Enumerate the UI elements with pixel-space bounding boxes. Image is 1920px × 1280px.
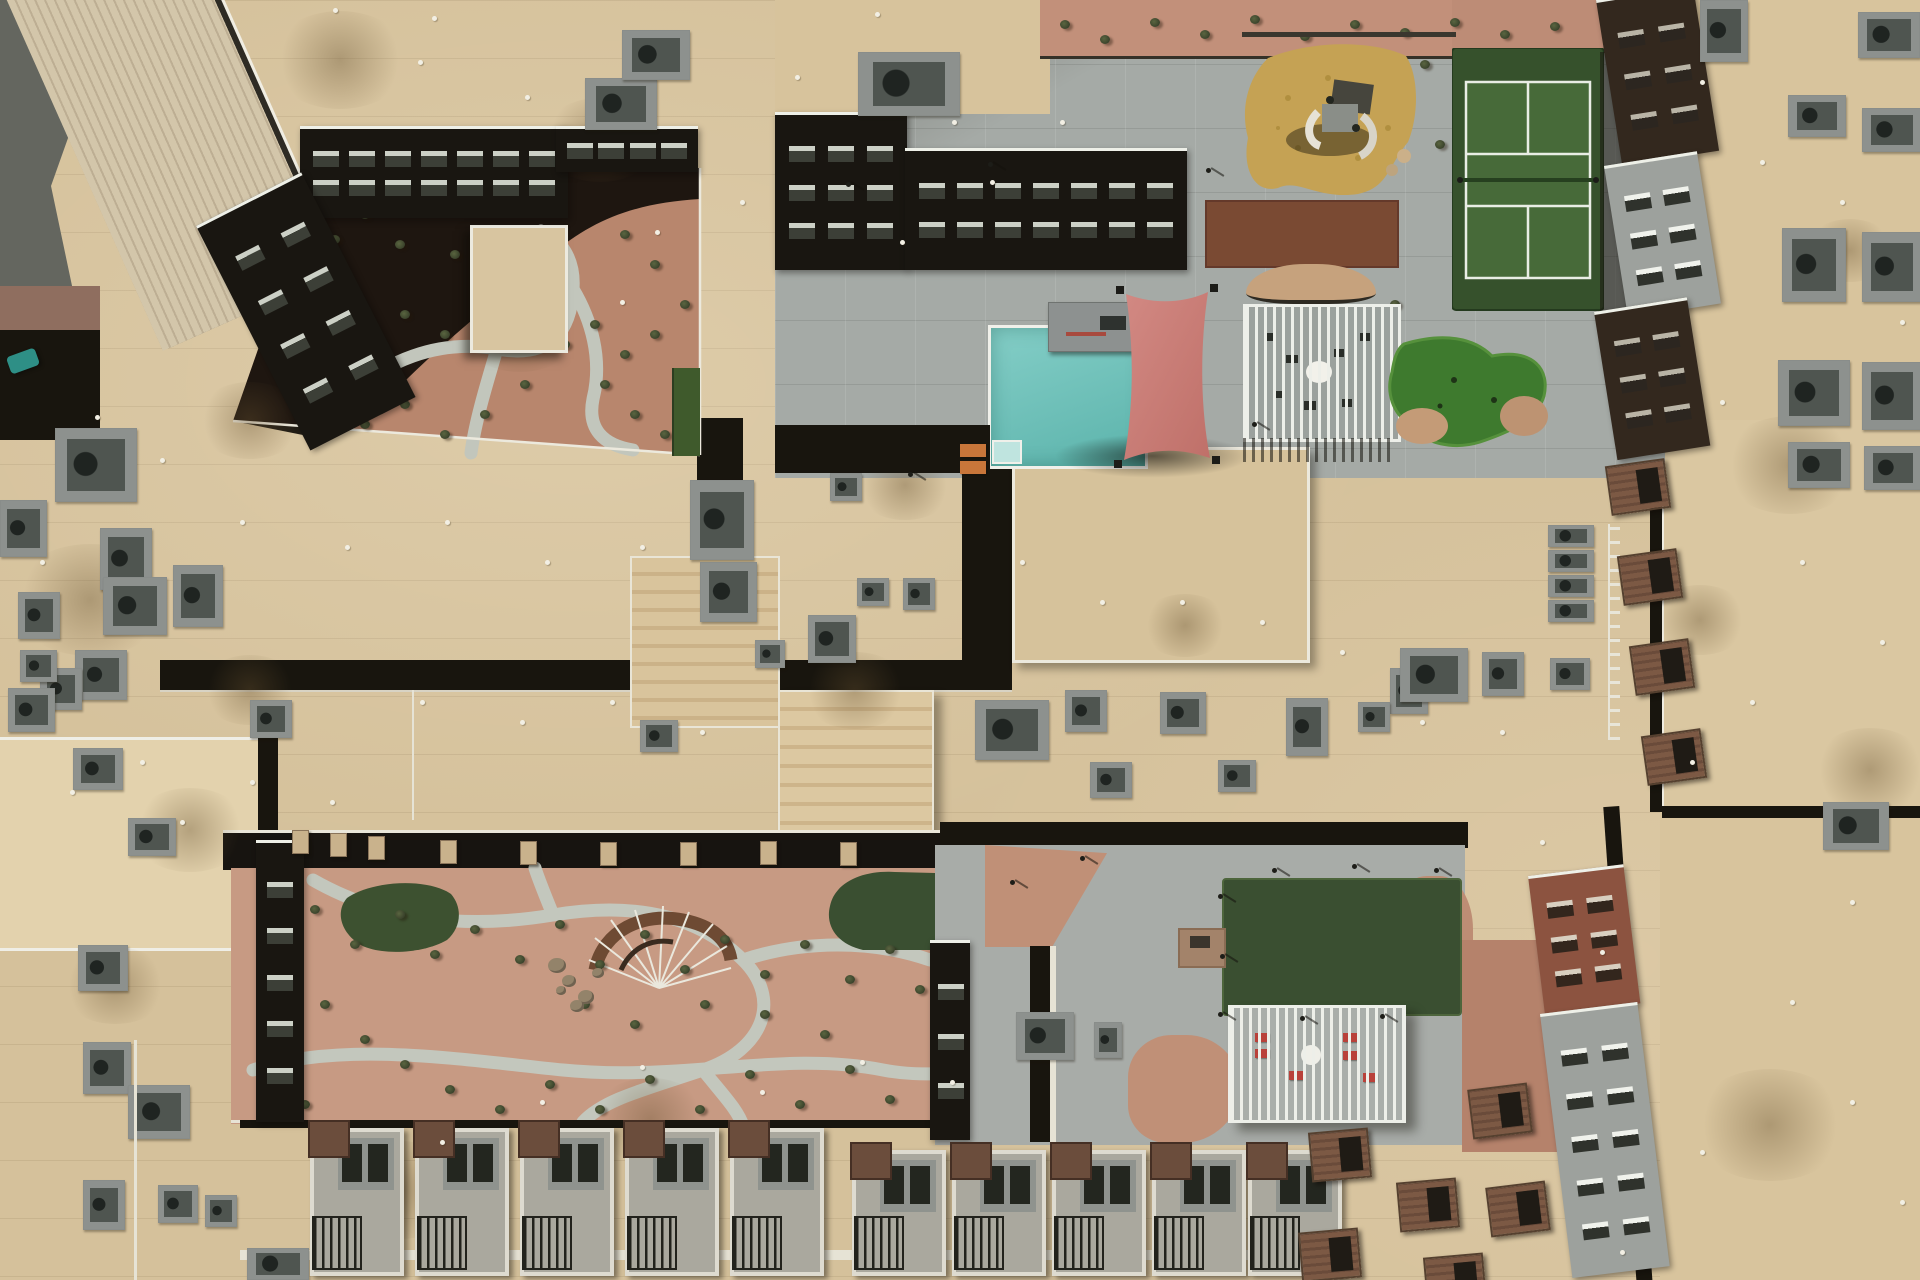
hvac-condenser [1789, 370, 1839, 416]
balcony-pergola [1396, 1177, 1460, 1232]
hvac-unit [1778, 360, 1850, 426]
hvac-unit [158, 1185, 198, 1223]
skylight [368, 1144, 388, 1182]
building-facade [1594, 297, 1710, 460]
hvac-unit [1788, 95, 1846, 137]
hvac-condenser [760, 645, 780, 664]
roof-vent-dot [1720, 400, 1725, 405]
hvac-condenser [1410, 656, 1458, 693]
window [257, 289, 287, 315]
hvac-condenser [257, 706, 286, 732]
stair-tower [308, 1120, 350, 1158]
window [1581, 1221, 1609, 1240]
hvac-condenser [700, 492, 745, 548]
skylight [910, 1166, 930, 1204]
skylight [788, 1144, 808, 1182]
hvac-condenser [1556, 663, 1583, 685]
window [598, 143, 624, 159]
hvac-unit [1862, 108, 1920, 152]
hvac-condenser [1871, 243, 1913, 292]
roof-vent-dot [1760, 160, 1765, 165]
window [1629, 229, 1657, 249]
roof-vent-dot [1700, 1150, 1705, 1155]
hvac-unit [640, 720, 678, 752]
hvac-condenser [596, 86, 646, 122]
window [938, 1083, 964, 1099]
hvac-unit [858, 52, 960, 116]
hvac-condenser [137, 1093, 180, 1130]
roof-vent-dot [1100, 600, 1105, 605]
path-light [1218, 1012, 1223, 1017]
roof-vent-dot [432, 16, 437, 21]
roof-vent-dot [70, 790, 75, 795]
window [1606, 1086, 1634, 1105]
stair-tower [850, 1142, 892, 1180]
roof-vent-dot [330, 800, 335, 805]
window [789, 185, 815, 201]
hvac-condenser [113, 586, 158, 626]
light-shadow [1305, 1015, 1319, 1025]
window [1555, 968, 1583, 987]
skylight [578, 1144, 598, 1182]
hvac-condenser [908, 583, 930, 605]
balcony-opening [1672, 737, 1699, 774]
window [1586, 895, 1614, 914]
pool-lounger [960, 444, 986, 457]
window [957, 222, 983, 238]
window [1611, 1129, 1639, 1148]
window [313, 180, 339, 196]
hvac-unit [1858, 12, 1920, 58]
roof-vent-dot [95, 415, 100, 420]
hvac-condenser [1867, 19, 1910, 51]
hvac-condenser [1833, 809, 1879, 842]
hvac-unit [1862, 362, 1920, 430]
window [421, 151, 447, 167]
path-light [1252, 422, 1257, 427]
stair-tower [1050, 1142, 1092, 1180]
rooftop-unit [415, 1128, 509, 1276]
window [1663, 404, 1691, 424]
window [1617, 29, 1645, 49]
stair-tower [413, 1120, 455, 1158]
path-light [1010, 880, 1015, 885]
hvac-condenser [86, 952, 121, 984]
stair-tower [728, 1120, 770, 1158]
path-light [988, 162, 993, 167]
roof-vent-dot [1840, 200, 1845, 205]
hvac-condenser [986, 709, 1038, 751]
roof-vent-dot [1850, 1100, 1855, 1105]
light-shadow [1225, 953, 1239, 963]
hvac-unit [75, 650, 127, 700]
balcony-railing [417, 1216, 467, 1270]
roof-vent-dot [1260, 620, 1265, 625]
roof-vent-dot [1900, 320, 1905, 325]
window [303, 266, 333, 292]
window [1560, 1047, 1588, 1066]
path-light [846, 182, 851, 187]
window [1071, 183, 1097, 199]
skylight [1110, 1166, 1130, 1204]
path-light [1352, 864, 1357, 869]
window [1662, 186, 1690, 206]
stair-tower [950, 1142, 992, 1180]
hvac-unit [18, 592, 60, 639]
hvac-unit [128, 1085, 190, 1139]
balcony-railing [1250, 1216, 1300, 1270]
hvac-condenser [26, 655, 51, 677]
hvac-unit [903, 578, 935, 610]
roof-vent-dot [640, 1065, 645, 1070]
walkway-pillar [840, 842, 857, 866]
roof-vent-dot [620, 300, 625, 305]
balcony-railing [312, 1216, 362, 1270]
stair-tower [1150, 1142, 1192, 1180]
hvac-condenser [873, 62, 945, 107]
window [1551, 934, 1579, 953]
window [1109, 222, 1135, 238]
window [1590, 929, 1618, 948]
window [938, 984, 964, 1000]
window [385, 151, 411, 167]
walkway-pillar [760, 841, 777, 865]
hvac-unit [690, 480, 754, 560]
roof-vent-dot [1750, 700, 1755, 705]
window [630, 143, 656, 159]
window [348, 355, 378, 381]
balcony-opening [1516, 1189, 1542, 1225]
walkway-pillar [680, 842, 697, 866]
window [957, 183, 983, 199]
path-light [1080, 856, 1085, 861]
hvac-condenser [815, 622, 848, 655]
hvac-condenser [1293, 707, 1322, 747]
hvac-unit [755, 640, 785, 668]
window [867, 146, 893, 162]
roof-vent-dot [1850, 900, 1855, 905]
path-light [1434, 868, 1439, 873]
window [385, 180, 411, 196]
hvac-unit [808, 615, 856, 663]
hvac-condenser [1167, 699, 1199, 728]
light-shadow [913, 471, 927, 481]
hvac-unit [78, 945, 128, 991]
hvac-condenser [90, 1050, 123, 1086]
roof-vent-dot [700, 730, 705, 735]
roof-conduit [134, 1040, 137, 1280]
roof-vent-dot [1020, 560, 1025, 565]
walkway-pillar [440, 840, 457, 864]
hvac-condenser [83, 658, 119, 693]
window [1622, 1216, 1650, 1235]
roof-conduit [412, 690, 414, 820]
hvac-condenser [90, 1188, 119, 1223]
hvac-condenser [256, 1253, 299, 1275]
rooftop-unit [730, 1128, 824, 1276]
balcony-opening [1648, 557, 1675, 594]
hvac-unit [830, 473, 862, 501]
hvac-unit [55, 428, 137, 502]
window [1652, 331, 1680, 351]
window [919, 222, 945, 238]
hvac-condenser [862, 583, 884, 602]
window [1033, 183, 1059, 199]
rooftop-unit [520, 1128, 614, 1276]
roof-vent-dot [795, 75, 800, 80]
window [1670, 104, 1698, 124]
roof-vent-dot [740, 200, 745, 205]
roof-vent-dot [445, 520, 450, 525]
light-shadow [1223, 893, 1237, 903]
window [867, 223, 893, 239]
hvac-condenser [1025, 1019, 1065, 1052]
hvac-unit [1864, 446, 1920, 490]
balcony-pergola [1298, 1227, 1362, 1280]
hvac-condenser [1072, 697, 1101, 726]
balcony-pergola [1467, 1083, 1533, 1140]
roof-vent-dot [952, 120, 957, 125]
walkway-pillar [292, 830, 309, 854]
building-facade [556, 126, 698, 172]
path-light [1380, 1014, 1385, 1019]
window [267, 928, 293, 944]
hvac-condenser [7, 509, 39, 549]
balcony-railing [954, 1216, 1004, 1270]
stair-tower [623, 1120, 665, 1158]
balcony-opening [1329, 1236, 1354, 1272]
path-light [1206, 168, 1211, 173]
roof-vent-dot [540, 1100, 545, 1105]
window [1674, 260, 1702, 280]
window [1595, 963, 1623, 982]
roof-vent-dot [440, 1140, 445, 1145]
window [267, 882, 293, 898]
hvac-unit [1862, 232, 1920, 302]
light-shadow [1223, 1011, 1237, 1021]
building-facade [775, 112, 907, 270]
hvac-unit [173, 565, 223, 627]
window [1071, 222, 1097, 238]
rooftop-unit [625, 1128, 719, 1276]
window [1623, 70, 1651, 90]
balcony-opening [1427, 1186, 1452, 1222]
rooftop-unit [852, 1150, 946, 1276]
hvac-condenser [81, 755, 116, 784]
window [267, 1068, 293, 1084]
hvac-unit [1094, 1022, 1122, 1058]
hvac-condenser [1555, 529, 1587, 543]
hvac-condenser [1224, 765, 1250, 787]
balcony-pergola [1423, 1252, 1487, 1280]
hvac-condenser [164, 1191, 191, 1217]
hvac-unit [83, 1180, 125, 1230]
roof-vent-dot [1800, 560, 1805, 565]
roof-vent-dot [418, 60, 423, 65]
hvac-unit [1700, 0, 1748, 62]
window [1658, 367, 1686, 387]
hvac-unit [1482, 652, 1524, 696]
window [1635, 267, 1663, 287]
balcony-pergola [1485, 1181, 1551, 1238]
roof-vent-dot [250, 780, 255, 785]
roof-vent-dot [520, 720, 525, 725]
roof-vent-dot [1690, 760, 1695, 765]
balcony-opening [1339, 1136, 1364, 1172]
roof-vent-dot [345, 545, 350, 550]
roof-vent-dot [640, 545, 645, 550]
window [421, 180, 447, 196]
building-facade [1604, 151, 1721, 318]
roof-vent-dot [1180, 600, 1185, 605]
window [828, 146, 854, 162]
roof-vent-dot [1500, 730, 1505, 735]
hvac-unit [0, 500, 47, 557]
window [661, 143, 687, 159]
hvac-unit [585, 78, 657, 130]
balcony-pergola [1629, 638, 1695, 696]
balcony-opening [1498, 1091, 1524, 1127]
path-light [1272, 868, 1277, 873]
roof-vent-dot [1340, 650, 1345, 655]
window [995, 222, 1021, 238]
roof-vent-dot [1700, 80, 1705, 85]
window [828, 185, 854, 201]
hvac-unit [1548, 600, 1594, 622]
hvac-unit [205, 1195, 237, 1227]
building-facade [1528, 864, 1640, 1015]
light-shadow [1385, 1013, 1399, 1023]
roof-vent-dot [1420, 720, 1425, 725]
hvac-unit [250, 700, 292, 738]
window [567, 143, 593, 159]
hvac-unit [1548, 525, 1594, 547]
hvac-unit [1016, 1012, 1074, 1060]
roof-vent-dot [1900, 1200, 1905, 1205]
roof-vent-dot [860, 1060, 865, 1065]
hvac-unit [1160, 692, 1206, 734]
hvac-condenser [25, 599, 54, 631]
roof-vent-dot [140, 760, 145, 765]
roof-vent-dot [525, 95, 530, 100]
hvac-unit [1823, 802, 1889, 850]
hvac-unit [700, 562, 757, 622]
roof-vent-dot [655, 230, 660, 235]
window [325, 310, 355, 336]
balcony-opening [1454, 1261, 1479, 1280]
roof-vent-dot [240, 520, 245, 525]
window [529, 180, 555, 196]
hvac-unit [128, 818, 176, 856]
window [267, 1021, 293, 1037]
roof-vent-dot [180, 820, 185, 825]
window [1657, 23, 1685, 43]
hvac-unit [20, 650, 57, 682]
roof-vent-dot [1620, 1250, 1625, 1255]
window [1147, 183, 1173, 199]
window [457, 151, 483, 167]
rooftop-unit [952, 1150, 1046, 1276]
stair-tower [1246, 1142, 1288, 1180]
hvac-unit [1218, 760, 1256, 792]
hvac-unit [857, 578, 889, 606]
hvac-condenser [1797, 449, 1840, 481]
hvac-unit [1065, 690, 1107, 732]
roof-vent-dot [333, 8, 338, 13]
hvac-unit [1550, 658, 1590, 690]
balcony-railing [1054, 1216, 1104, 1270]
window [1617, 1173, 1645, 1192]
hvac-condenser [1792, 239, 1837, 291]
building-facade [256, 840, 304, 1122]
window [1147, 222, 1173, 238]
hvac-unit [1400, 648, 1468, 702]
window [457, 180, 483, 196]
walkway-pillar [600, 842, 617, 866]
light-shadow [1277, 867, 1291, 877]
hvac-condenser [181, 574, 216, 617]
path-light [1300, 1016, 1305, 1021]
hvac-condenser [1871, 372, 1913, 420]
hvac-condenser [135, 824, 168, 850]
light-shadow [1439, 867, 1453, 877]
roof-vent-dot [760, 1090, 765, 1095]
window [1630, 111, 1658, 131]
window [1033, 222, 1059, 238]
hvac-unit [1782, 228, 1846, 302]
building-facade [930, 940, 970, 1140]
window [919, 183, 945, 199]
aerial-photo [0, 0, 1920, 1280]
roof-vent-dot [610, 700, 615, 705]
building-facade [905, 148, 1187, 270]
window [235, 245, 265, 271]
hvac-condenser [709, 571, 749, 613]
pool-lounger [960, 461, 986, 474]
hvac-condenser [646, 725, 672, 747]
walkway-pillar [520, 841, 537, 865]
hvac-condenser [1555, 554, 1587, 568]
balcony-railing [522, 1216, 572, 1270]
window [828, 223, 854, 239]
window [349, 151, 375, 167]
balcony-railing [854, 1216, 904, 1270]
window [1576, 1178, 1604, 1197]
light-shadow [1257, 421, 1271, 431]
hvac-condenser [1873, 453, 1913, 483]
light-shadow [1357, 863, 1371, 873]
light-shadow [1211, 167, 1225, 177]
skylight [683, 1144, 703, 1182]
roof-vent-dot [40, 560, 45, 565]
window [280, 222, 310, 248]
window [349, 180, 375, 196]
hvac-unit [975, 700, 1049, 760]
window [867, 185, 893, 201]
roof-vent-dot [1600, 950, 1605, 955]
window [1619, 373, 1647, 393]
path-light [1218, 894, 1223, 899]
window [1664, 64, 1692, 84]
window [1625, 410, 1653, 430]
hvac-unit [73, 748, 123, 790]
hvac-unit [622, 30, 690, 80]
roof-vent-dot [420, 700, 425, 705]
window [529, 151, 555, 167]
rooftop-unit [310, 1128, 404, 1276]
hvac-unit [1286, 698, 1328, 756]
hvac-condenser [15, 695, 47, 725]
